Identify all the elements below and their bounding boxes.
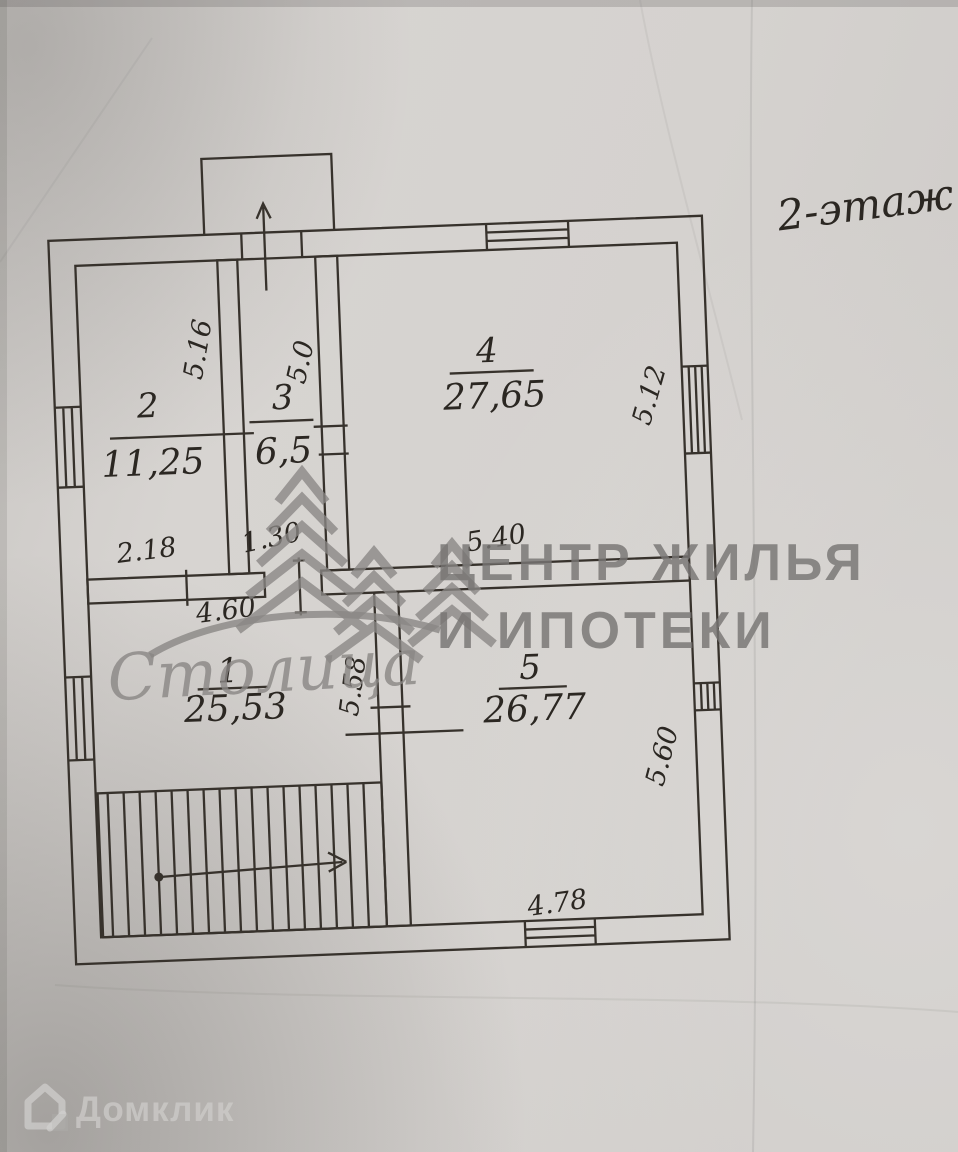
room-number: 3	[271, 378, 294, 419]
tick-mid-wall	[186, 570, 187, 606]
agency-name-line2: И ИПОТЕКИ	[437, 602, 776, 660]
room-area: 27,65	[441, 374, 547, 419]
room-number: 4	[474, 331, 498, 372]
room-area: 26,77	[481, 687, 587, 732]
floorplan-svg: 2 11,25 3 6,5 4 27,65 1 25,53 5 26,77 5.…	[0, 0, 958, 1152]
tick-wall-c	[371, 706, 411, 708]
domklik-brand-text: Домклик	[76, 1090, 234, 1129]
room-area: 11,25	[101, 441, 206, 486]
room-area: 6,5	[254, 430, 313, 473]
agency-name-line1: ЦЕНТР ЖИЛЬЯ	[437, 534, 866, 592]
room-number: 2	[135, 386, 159, 427]
door-tick-wall-b	[319, 453, 349, 454]
floorplan-photo: 2 11,25 3 6,5 4 27,65 1 25,53 5 26,77 5.…	[0, 0, 958, 1152]
